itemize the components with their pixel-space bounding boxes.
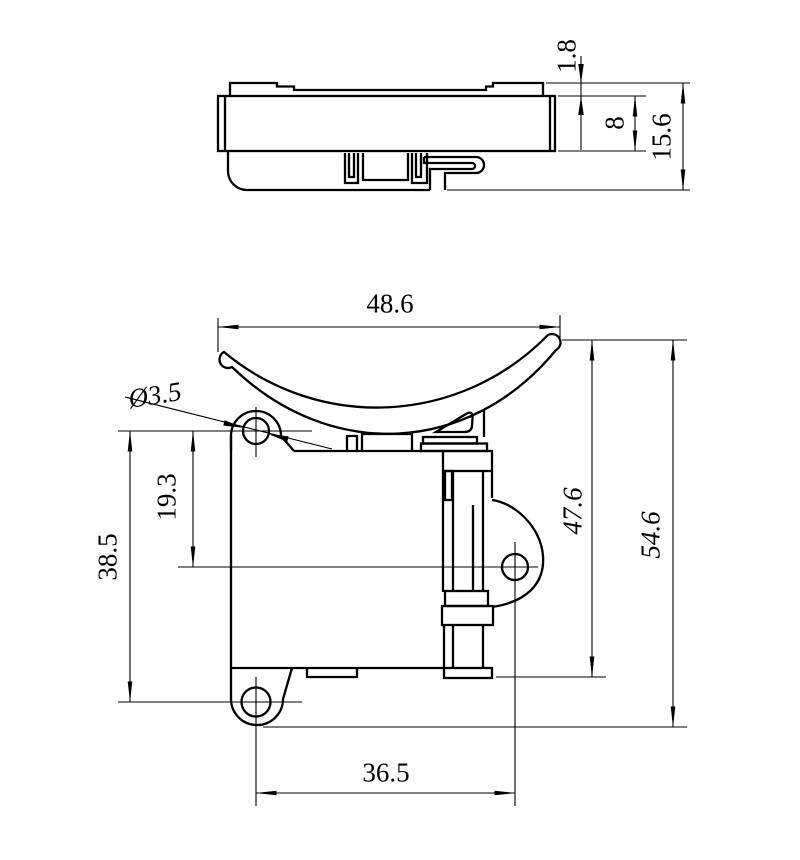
- engineering-drawing: 1.8 8 15.6: [0, 0, 800, 860]
- side-lower-housing: [228, 151, 430, 190]
- front-view-dimensions: 48.6 Ø3.5 19.3 38.5 47.6 54.6 36.5: [92, 288, 687, 806]
- side-body-outline: [218, 96, 555, 151]
- rail-top-block: [443, 451, 492, 471]
- side-top-plate: [230, 83, 543, 96]
- arrowhead: [269, 434, 289, 442]
- side-leg-1: [345, 153, 358, 183]
- front-view: [220, 334, 561, 725]
- rail-foot: [444, 668, 492, 678]
- drawing-sheet: 1.8 8 15.6: [0, 0, 800, 860]
- dim-body-height-label: 8: [599, 116, 629, 130]
- rail-verticals: [443, 471, 492, 592]
- rib-window: [436, 413, 473, 432]
- arrowhead: [223, 420, 243, 428]
- dim-overall-height-front-label: 54.6: [635, 511, 665, 559]
- rail-lower-verticals: [444, 625, 483, 668]
- dim-hole-span-horizontal-label: 36.5: [362, 757, 409, 787]
- center-block-small: [347, 436, 357, 451]
- side-leg-2: [363, 153, 408, 180]
- side-view: [218, 83, 555, 190]
- dim-rail-height-label: 47.6: [557, 487, 587, 535]
- center-block-wide: [362, 434, 412, 451]
- dim-plate-thickness-label: 1.8: [551, 39, 581, 73]
- arrowhead: [578, 96, 584, 115]
- rail-bar-1: [445, 591, 488, 606]
- dim-upper-offset-label: 19.3: [151, 473, 181, 520]
- side-hook-inner: [430, 163, 475, 190]
- bottom-tab: [307, 668, 357, 677]
- dim-hole-diameter-label: Ø3.5: [125, 376, 183, 414]
- rail-notch: [445, 471, 452, 500]
- dim-top-width-label: 48.6: [366, 288, 413, 318]
- rail-bar-2: [442, 606, 493, 625]
- saddle-arm: [220, 334, 561, 434]
- dim-hole-span-vertical-label: 38.5: [92, 533, 122, 580]
- dim-overall-height-side-label: 15.6: [646, 113, 676, 160]
